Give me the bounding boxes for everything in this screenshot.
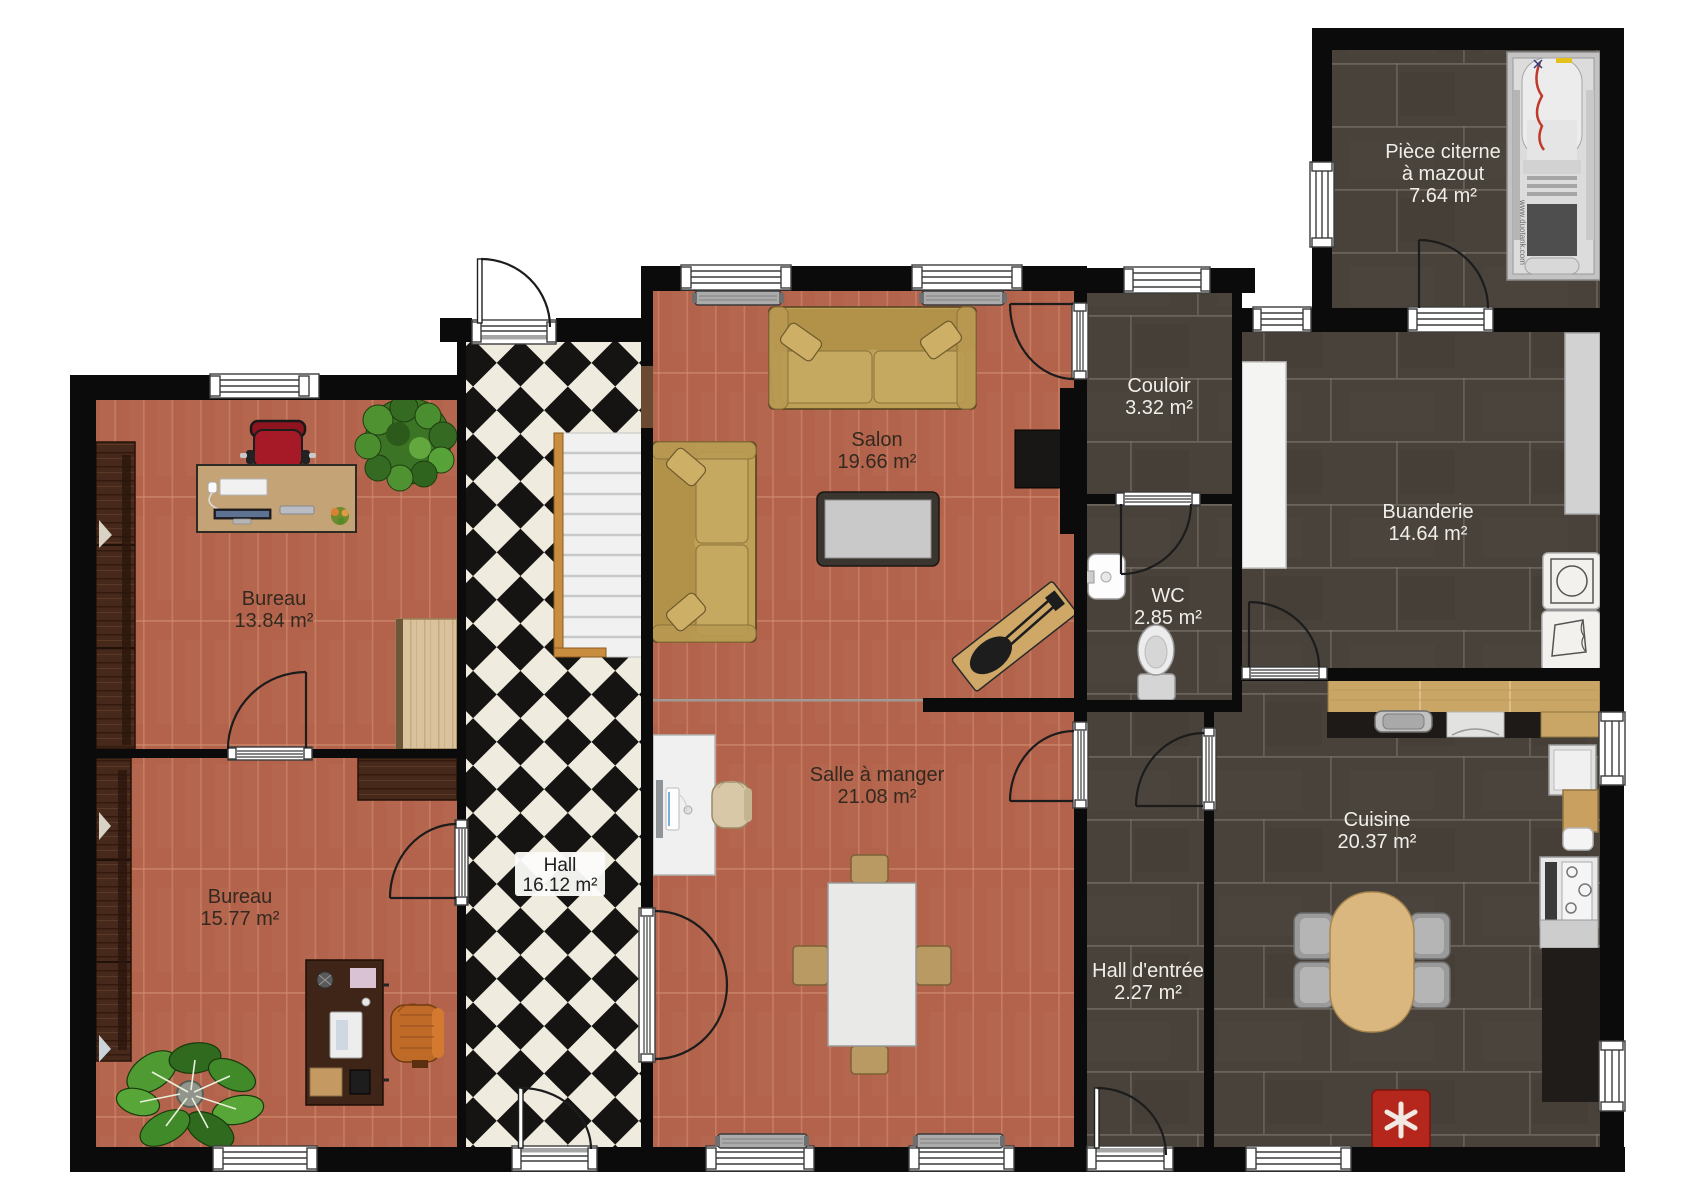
svg-text:Bureau: Bureau [242,588,307,610]
svg-text:www.duotank.com: www.duotank.com [1518,199,1527,265]
svg-text:Cuisine: Cuisine [1344,809,1411,831]
svg-text:15.77 m²: 15.77 m² [201,908,280,930]
svg-text:19.66 m²: 19.66 m² [838,451,917,473]
svg-text:Buanderie: Buanderie [1382,501,1473,523]
svg-text:Bureau: Bureau [208,886,273,908]
svg-text:2.27 m²: 2.27 m² [1114,982,1182,1004]
svg-text:à mazout: à mazout [1402,163,1485,185]
svg-text:Hall d'entrée: Hall d'entrée [1092,960,1204,982]
svg-text:14.64 m²: 14.64 m² [1389,523,1468,545]
svg-text:Salon: Salon [851,429,902,451]
svg-text:2.85 m²: 2.85 m² [1134,607,1202,629]
svg-text:13.84 m²: 13.84 m² [235,610,314,632]
svg-text:3.32 m²: 3.32 m² [1125,397,1193,419]
svg-text:WC: WC [1151,585,1184,607]
svg-text:20.37 m²: 20.37 m² [1338,831,1417,853]
svg-text:Salle à manger: Salle à manger [810,764,945,786]
svg-text:Hall: Hall [544,855,577,876]
svg-text:21.08 m²: 21.08 m² [838,786,917,808]
svg-text:7.64 m²: 7.64 m² [1409,185,1477,207]
svg-text:Pièce citerne: Pièce citerne [1385,141,1501,163]
svg-text:Couloir: Couloir [1127,375,1191,397]
svg-text:16.12 m²: 16.12 m² [523,875,598,896]
